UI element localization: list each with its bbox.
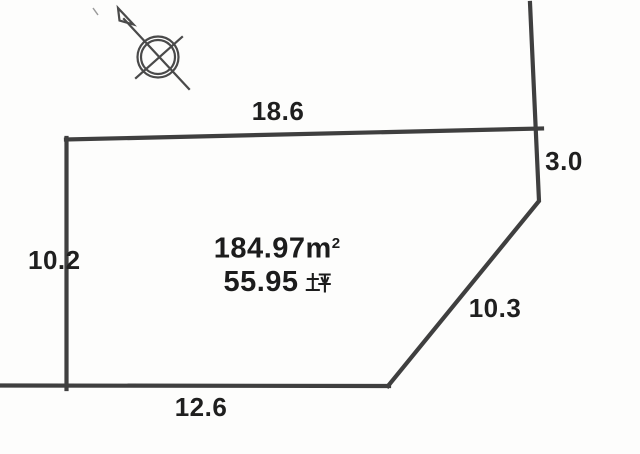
dimension-right-diagonal: 10.3 (469, 295, 522, 321)
boundary-top (66, 129, 542, 140)
dimension-right-upper: 3.0 (545, 148, 583, 174)
boundary-bottom (2, 386, 389, 387)
area-sqm-value: 184.97 (214, 232, 306, 264)
north-arrow (118, 8, 189, 89)
area-annotation: 184.97m2 55.95 (214, 227, 340, 299)
boundary-right-and-diagonal (388, 3, 539, 386)
area-tsubo-value: 55.95 (223, 266, 298, 298)
dimension-top: 18.6 (252, 98, 305, 124)
tsubo-character (305, 269, 331, 293)
survey-diagram: 18.6 3.0 10.3 12.6 10.2 184.97m2 55.95 (0, 0, 640, 454)
dimension-left: 10.2 (28, 247, 81, 273)
area-square-meters: 184.97m2 (214, 227, 340, 265)
area-tsubo: 55.95 (214, 265, 340, 299)
area-sqm-unit: m (306, 232, 332, 264)
area-sqm-exponent: 2 (332, 235, 340, 252)
dimension-bottom: 12.6 (175, 394, 228, 420)
stray-scan-mark (93, 8, 98, 15)
north-arrowhead-icon (118, 8, 134, 25)
